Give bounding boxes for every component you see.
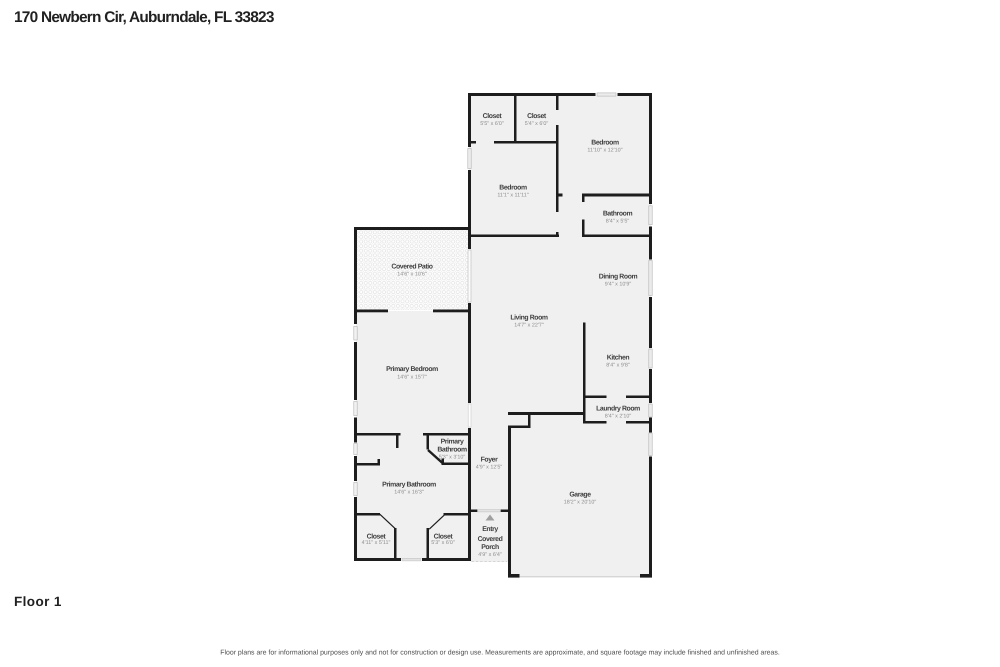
svg-text:Primary Bedroom: Primary Bedroom bbox=[386, 366, 438, 373]
svg-text:4'11" x 5'11": 4'11" x 5'11" bbox=[362, 540, 391, 546]
svg-text:5'3" x 3'10": 5'3" x 3'10" bbox=[439, 455, 466, 461]
svg-text:Primary: Primary bbox=[441, 439, 464, 446]
svg-text:4'9" x 12'5": 4'9" x 12'5" bbox=[476, 465, 503, 471]
svg-text:4'9" x 6'4": 4'9" x 6'4" bbox=[478, 552, 502, 558]
svg-text:14'6" x 15'7": 14'6" x 15'7" bbox=[397, 375, 427, 381]
svg-text:Entry: Entry bbox=[482, 526, 498, 533]
svg-text:14'6" x 10'6": 14'6" x 10'6" bbox=[397, 272, 427, 278]
svg-text:Floor plans are for informatio: Floor plans are for informational purpos… bbox=[220, 649, 780, 657]
svg-text:9'4" x 10'9": 9'4" x 10'9" bbox=[605, 282, 632, 288]
svg-text:Laundry Room: Laundry Room bbox=[596, 406, 640, 413]
svg-text:Covered: Covered bbox=[478, 536, 503, 543]
svg-text:Closet: Closet bbox=[483, 113, 503, 120]
svg-text:Bathroom: Bathroom bbox=[603, 211, 633, 218]
svg-text:Garage: Garage bbox=[569, 492, 591, 499]
svg-text:Floor 1: Floor 1 bbox=[14, 594, 62, 609]
svg-text:Kitchen: Kitchen bbox=[607, 355, 630, 362]
svg-text:5'4" x 6'0": 5'4" x 6'0" bbox=[525, 121, 549, 127]
svg-text:14'6" x 16'3": 14'6" x 16'3" bbox=[394, 490, 424, 496]
svg-text:Closet: Closet bbox=[527, 113, 547, 120]
svg-text:18'2" x 20'10": 18'2" x 20'10" bbox=[564, 500, 597, 506]
svg-text:14'7" x 22'7": 14'7" x 22'7" bbox=[514, 323, 544, 329]
svg-text:Bedroom: Bedroom bbox=[499, 185, 527, 192]
svg-text:8'4" x 5'5": 8'4" x 5'5" bbox=[606, 219, 630, 225]
svg-text:170 Newbern Cir, Auburndale, F: 170 Newbern Cir, Auburndale, FL 33823 bbox=[14, 9, 274, 26]
svg-text:11'10" x 12'10": 11'10" x 12'10" bbox=[587, 148, 622, 154]
svg-text:Covered Patio: Covered Patio bbox=[391, 264, 432, 271]
svg-text:11'1" x 11'11": 11'1" x 11'11" bbox=[497, 193, 528, 199]
svg-text:Dining Room: Dining Room bbox=[599, 274, 638, 281]
svg-text:Bathroom: Bathroom bbox=[437, 447, 467, 454]
svg-text:Foyer: Foyer bbox=[481, 457, 498, 464]
svg-text:Porch: Porch bbox=[481, 544, 499, 551]
svg-text:8'4" x 9'8": 8'4" x 9'8" bbox=[606, 363, 630, 369]
svg-text:8'4" x 2'10": 8'4" x 2'10" bbox=[605, 414, 632, 420]
svg-text:Primary Bathroom: Primary Bathroom bbox=[382, 482, 436, 489]
svg-text:Living Room: Living Room bbox=[510, 315, 548, 322]
svg-text:Bedroom: Bedroom bbox=[591, 140, 619, 147]
svg-text:5'5" x 6'0": 5'5" x 6'0" bbox=[480, 121, 504, 127]
svg-text:5'3" x 6'0": 5'3" x 6'0" bbox=[431, 540, 455, 546]
